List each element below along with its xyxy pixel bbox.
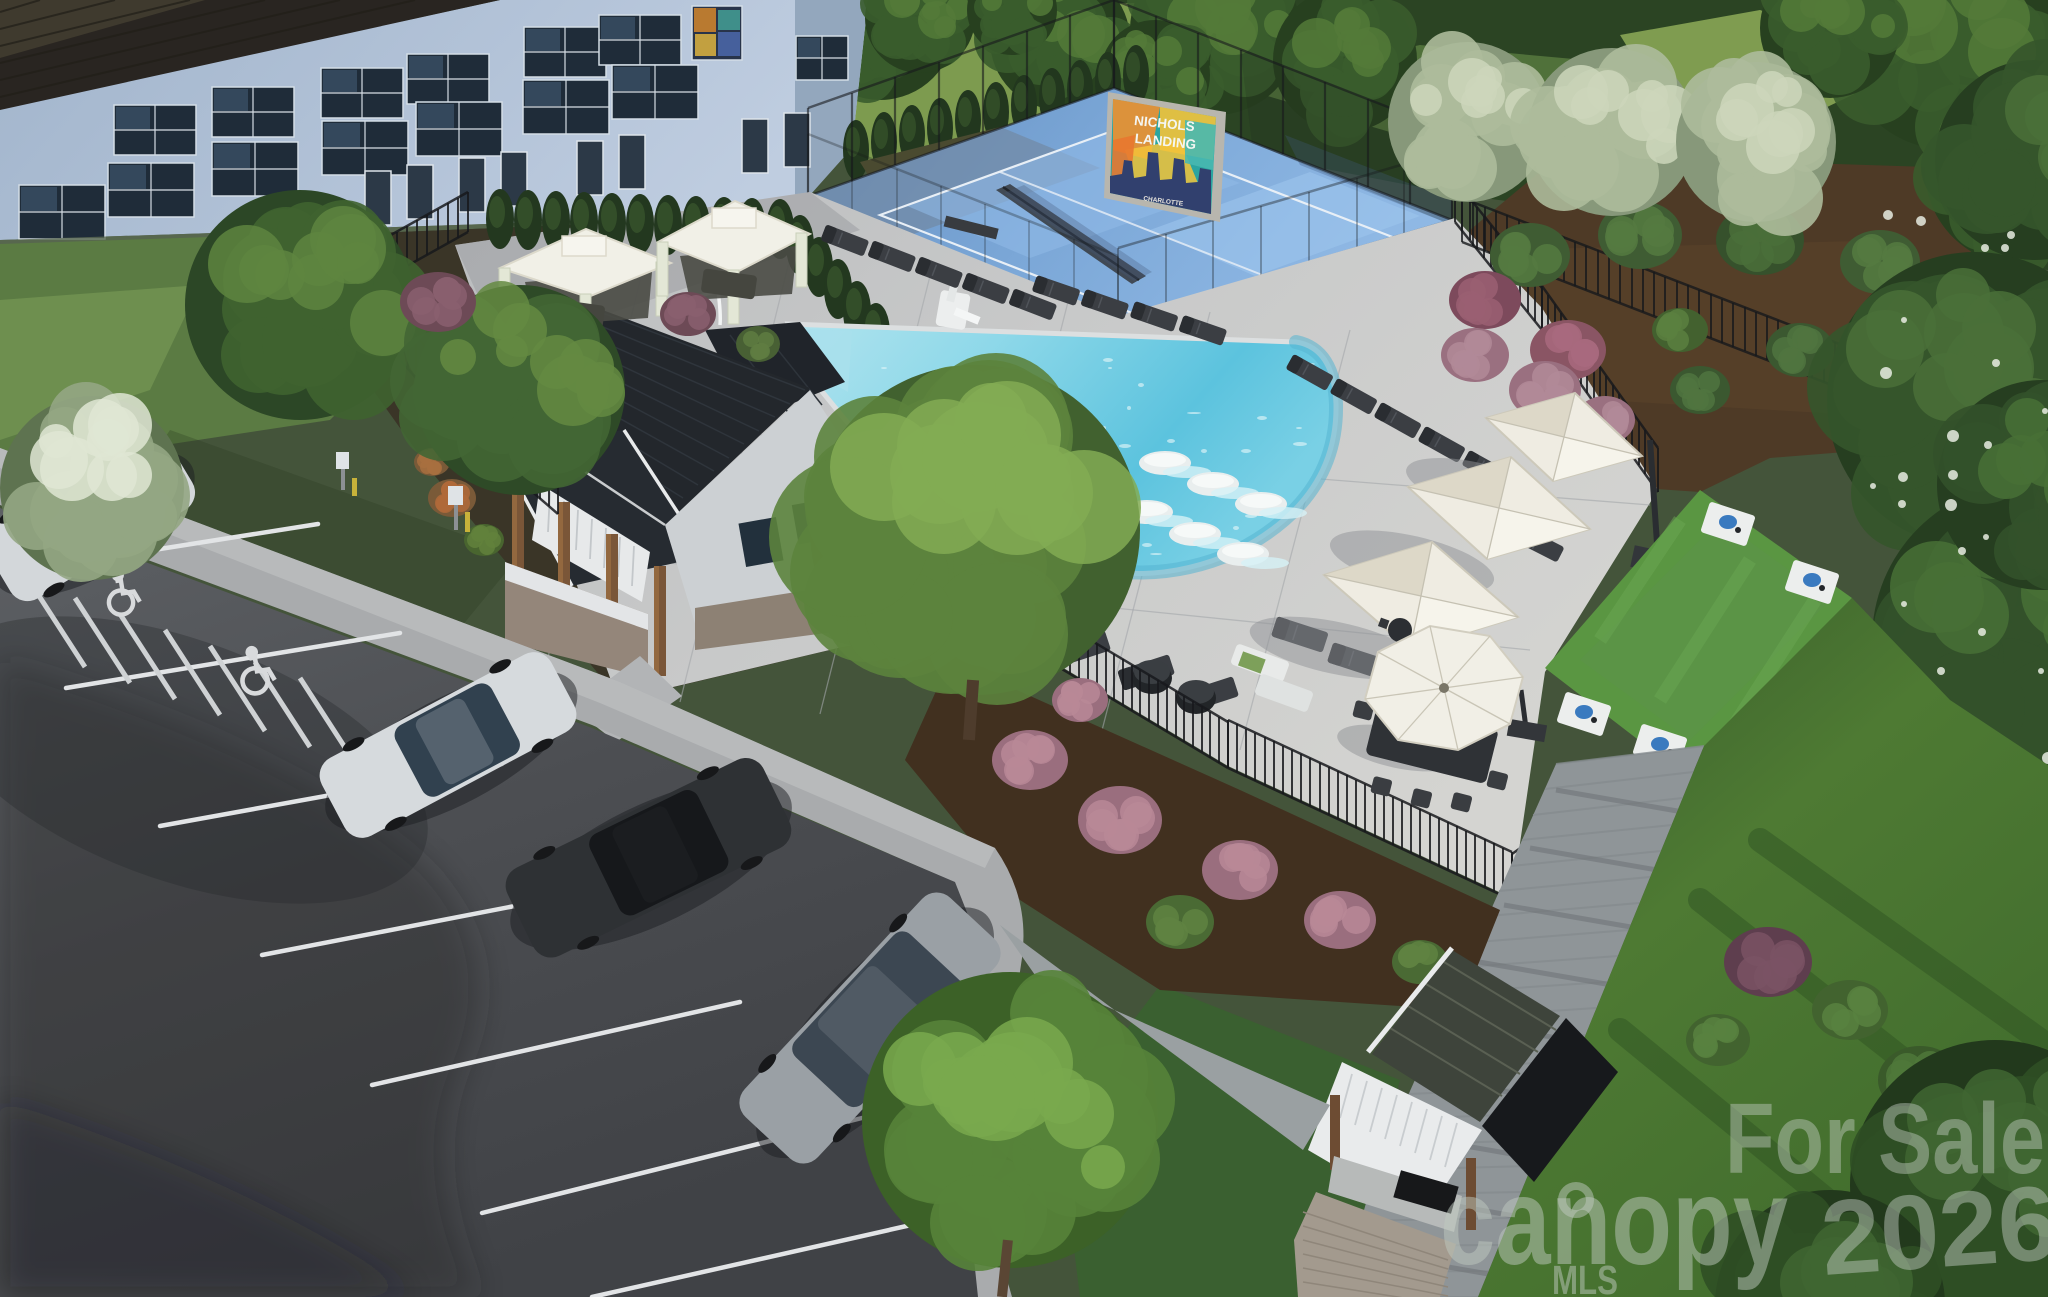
svg-text:2026: 2026 bbox=[1817, 1164, 2048, 1297]
svg-text:MLS: MLS bbox=[1552, 1257, 1618, 1297]
